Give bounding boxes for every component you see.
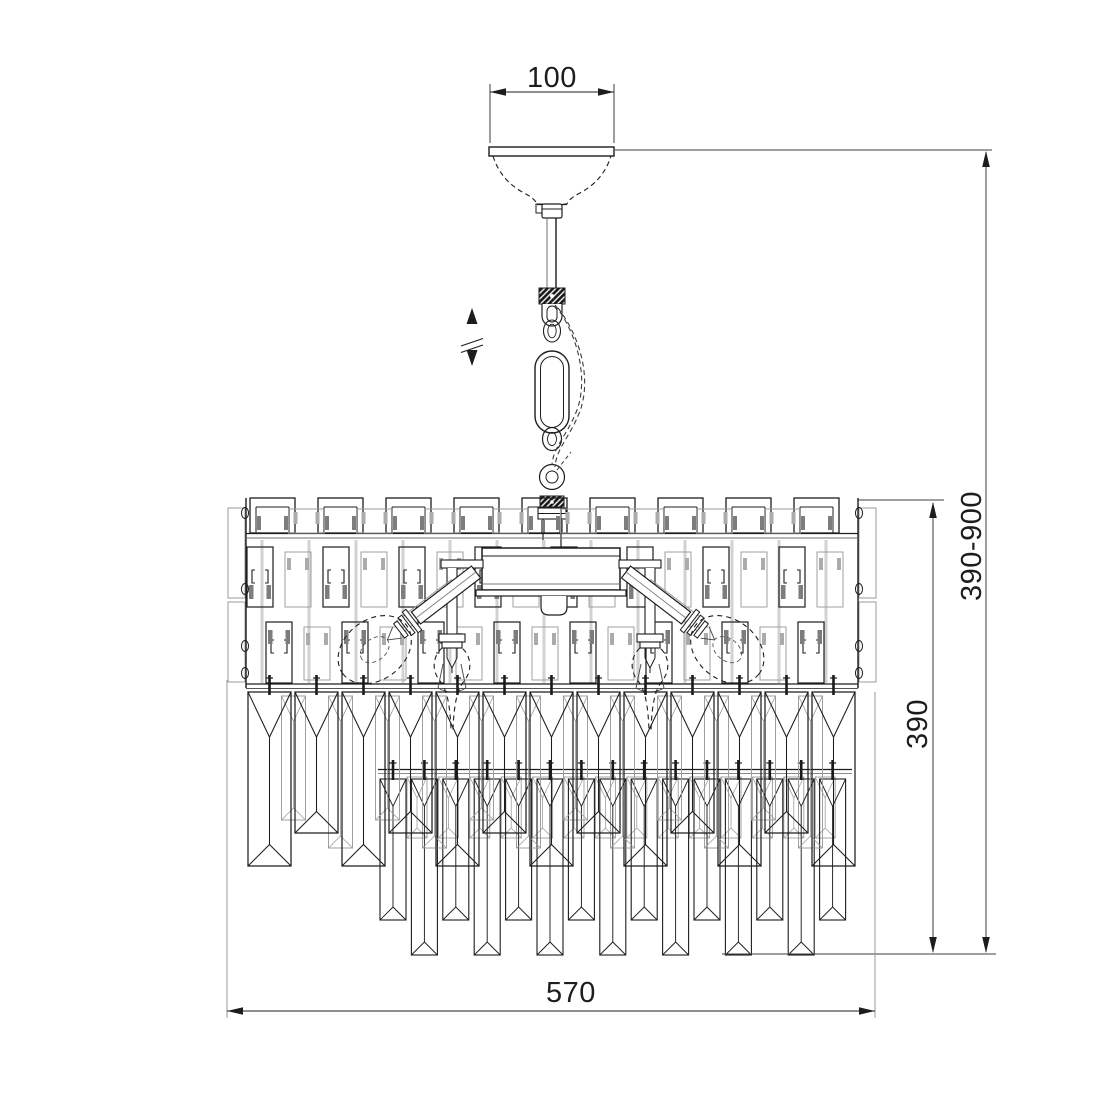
prism-facet	[631, 779, 644, 806]
clip	[476, 633, 480, 645]
prism-facet	[470, 828, 480, 838]
prism-facet	[833, 779, 846, 806]
prism-facet	[788, 942, 801, 955]
prism-facet	[329, 836, 341, 848]
plate-bevel-mark	[265, 570, 268, 583]
clip	[572, 630, 577, 644]
socket	[640, 642, 660, 648]
clip	[316, 512, 320, 524]
prism-facet	[364, 845, 386, 867]
prism-facet	[533, 828, 543, 838]
prism-facet	[787, 692, 809, 737]
arrowhead-down-icon	[929, 937, 937, 953]
arrow-down-icon	[467, 350, 478, 366]
cross-arm	[441, 560, 483, 568]
clip	[430, 512, 434, 524]
clip	[597, 516, 601, 530]
prism-facet	[721, 828, 731, 838]
clip	[401, 585, 406, 599]
prism-facet	[815, 828, 825, 838]
arrowhead-down-icon	[982, 937, 990, 953]
clip	[762, 633, 766, 645]
prism-facet	[393, 907, 406, 920]
arrowhead-right-icon	[859, 1007, 875, 1015]
arrowhead-right-icon	[598, 88, 614, 96]
clip	[634, 512, 638, 524]
prism-facet	[380, 779, 393, 806]
prism-facet	[631, 907, 644, 920]
prism-facet	[519, 907, 532, 920]
clip	[723, 585, 728, 599]
chain-link-large-inner	[541, 357, 564, 428]
prism-facet	[550, 942, 563, 955]
prism-facet	[248, 845, 270, 867]
dimension-body-width: 570	[227, 680, 875, 1018]
prism-facet	[820, 907, 833, 920]
prism-facet	[663, 942, 676, 955]
prism-facet	[600, 942, 613, 955]
power-cord-end	[557, 452, 571, 470]
prism-facet	[380, 907, 393, 920]
globe-filament	[387, 638, 401, 640]
canopy-plate	[489, 147, 614, 156]
prism-facet	[282, 808, 294, 820]
prism-facet	[644, 779, 657, 806]
prism-facet	[458, 692, 480, 737]
chain-ring	[543, 428, 562, 451]
clip	[287, 558, 291, 570]
prism-facet	[537, 779, 550, 806]
bottom-loop-inner	[546, 471, 558, 483]
hub-loop	[541, 596, 567, 615]
clip	[393, 516, 397, 530]
clip	[665, 516, 669, 530]
clip	[552, 633, 556, 645]
clevis	[542, 304, 562, 326]
prism-facet	[801, 942, 814, 955]
arrowhead-left-icon	[227, 1007, 243, 1015]
clip	[828, 516, 832, 530]
clip	[325, 585, 330, 599]
prism-facet	[627, 828, 637, 838]
prism-facet	[568, 907, 581, 920]
chandelier-dimension-drawing: 100	[0, 0, 1100, 1100]
plate-bevel-mark	[784, 570, 787, 583]
prism-facet	[820, 779, 833, 806]
arrowhead-up-icon	[929, 502, 937, 518]
prism-facet	[270, 692, 292, 737]
prism-facet	[364, 692, 386, 737]
clip	[743, 558, 747, 570]
clip	[624, 516, 628, 530]
plate-bevel-mark	[721, 570, 724, 583]
prism-facet	[725, 942, 738, 955]
clip	[799, 585, 804, 599]
prism-facet	[693, 812, 715, 834]
plate-bevel-mark	[797, 570, 800, 583]
prism-facet	[658, 808, 670, 820]
clip	[801, 516, 805, 530]
clip	[760, 516, 764, 530]
clip	[452, 512, 456, 524]
clip	[800, 630, 805, 644]
clip	[488, 516, 492, 530]
prism-facet	[693, 692, 715, 737]
prism-facet	[487, 942, 500, 955]
clip	[733, 516, 737, 530]
prism-facet	[424, 942, 437, 955]
prism-facet	[505, 812, 527, 834]
ceiling-canopy	[489, 147, 614, 289]
prism-facet	[599, 812, 621, 834]
clip	[588, 512, 592, 524]
prism-facet	[788, 779, 801, 806]
socket	[637, 634, 663, 642]
clip	[666, 630, 671, 644]
prism-facet	[752, 808, 764, 820]
clip	[514, 630, 519, 644]
clip	[498, 512, 502, 524]
clip	[780, 633, 784, 645]
clip	[724, 630, 729, 644]
clip	[382, 633, 386, 645]
prism-facet	[581, 907, 594, 920]
prism-facet	[613, 942, 626, 955]
clip	[249, 585, 254, 599]
prism-facet	[834, 692, 856, 737]
clip	[520, 512, 524, 524]
chain-ring-inner	[548, 433, 557, 446]
clip	[566, 512, 570, 524]
technical-drawing-page: 100	[0, 0, 1100, 1100]
break-mark	[461, 339, 483, 347]
clip	[667, 558, 671, 570]
clip	[257, 516, 261, 530]
clip	[742, 630, 747, 644]
clip	[818, 630, 823, 644]
dim-label-body-width: 570	[546, 977, 596, 1009]
clip	[556, 516, 560, 530]
canopy-bell	[493, 156, 611, 204]
filament	[650, 658, 655, 668]
prism-facet	[833, 907, 846, 920]
prism-facet	[317, 692, 339, 737]
cross-arm	[619, 560, 661, 568]
prism-facet	[317, 812, 339, 834]
canopy-nipple	[542, 204, 562, 218]
clip	[529, 516, 533, 530]
prism-facet	[787, 812, 809, 834]
clip	[352, 516, 356, 530]
clip	[384, 512, 388, 524]
canopy-thread-nub	[536, 204, 542, 213]
clip	[419, 585, 424, 599]
height-adjustable-symbol	[461, 308, 483, 366]
connector-pin	[550, 294, 554, 298]
clip	[724, 512, 728, 524]
prism-facet	[537, 942, 550, 955]
clip	[656, 512, 660, 524]
dim-label-canopy-width: 100	[527, 62, 577, 94]
prism-facet	[448, 828, 458, 838]
clip	[534, 633, 538, 645]
prism-facet	[740, 692, 762, 737]
arrow-up-icon	[467, 308, 478, 324]
clip	[268, 630, 273, 644]
arrowhead-up-icon	[982, 151, 990, 167]
prism-facet	[552, 845, 574, 867]
dimension-canopy-width: 100	[490, 62, 614, 143]
clip	[761, 558, 765, 570]
prism-facet	[443, 779, 456, 806]
clip	[343, 585, 348, 599]
plate-bevel-mark	[328, 570, 331, 583]
prism-facet	[738, 942, 751, 955]
prism-facet	[725, 779, 738, 806]
prism-facet	[376, 808, 388, 820]
prism-facet	[646, 845, 668, 867]
clip	[294, 512, 298, 524]
prism-facet	[770, 779, 783, 806]
prism-facet	[506, 907, 519, 920]
plate-bevel-mark	[708, 570, 711, 583]
prism-facet	[456, 907, 469, 920]
prism-facet	[676, 942, 689, 955]
dim-label-body-height: 390	[902, 699, 934, 749]
prism-facet	[707, 907, 720, 920]
hub-flange	[476, 590, 626, 596]
prism-facet	[646, 692, 668, 737]
connector-pin	[550, 500, 554, 504]
plate-bevel-mark	[252, 570, 255, 583]
globe-filament	[387, 627, 392, 640]
plate-bevel-mark	[404, 570, 407, 583]
prism-facet	[834, 845, 856, 867]
clip	[792, 512, 796, 524]
clip	[324, 633, 328, 645]
prism-facet	[694, 907, 707, 920]
prism-facet	[694, 779, 707, 806]
prism-facet	[740, 845, 762, 867]
prism-facet	[411, 812, 433, 834]
prism-facet	[411, 692, 433, 737]
clip	[267, 585, 272, 599]
clip	[420, 516, 424, 530]
prism-facet	[248, 692, 270, 737]
clip	[362, 630, 367, 644]
clip	[284, 516, 288, 530]
clip	[363, 558, 367, 570]
arm-axis	[626, 572, 686, 618]
clip	[306, 633, 310, 645]
crystal-prisms	[248, 675, 855, 955]
arrowhead-left-icon	[490, 88, 506, 96]
socket	[442, 642, 462, 648]
clip	[781, 585, 786, 599]
plate-bevel-mark	[417, 570, 420, 583]
clip	[381, 558, 385, 570]
prism-facet	[568, 779, 581, 806]
prism-facet	[270, 845, 292, 867]
prism-facet	[644, 907, 657, 920]
clip	[819, 558, 823, 570]
prism-facet	[757, 907, 770, 920]
bottom-loop	[540, 465, 565, 490]
clip	[325, 516, 329, 530]
clip	[461, 516, 465, 530]
prism-facet	[738, 779, 751, 806]
clip	[305, 558, 309, 570]
clip	[286, 630, 291, 644]
plate-bevel-mark	[341, 570, 344, 583]
clip	[692, 516, 696, 530]
clip	[702, 512, 706, 524]
prism-facet	[552, 692, 574, 737]
prism-facet	[599, 692, 621, 737]
prism-facet	[474, 942, 487, 955]
clip	[628, 633, 632, 645]
dim-label-overall-height: 390-900	[956, 491, 988, 601]
socket	[439, 634, 465, 642]
dimension-body-height: 390	[858, 500, 944, 953]
clip	[541, 520, 545, 533]
prism-facet	[676, 779, 689, 806]
clip	[496, 630, 501, 644]
clip	[610, 633, 614, 645]
clip	[590, 630, 595, 644]
clip	[705, 585, 710, 599]
prism-facet	[411, 942, 424, 955]
prism-facet	[770, 907, 783, 920]
prism-facet	[443, 907, 456, 920]
clip	[420, 630, 425, 644]
prism-facet	[505, 692, 527, 737]
prism-facet	[474, 779, 487, 806]
clip	[770, 512, 774, 524]
clip	[837, 558, 841, 570]
clip	[362, 512, 366, 524]
clip	[685, 558, 689, 570]
